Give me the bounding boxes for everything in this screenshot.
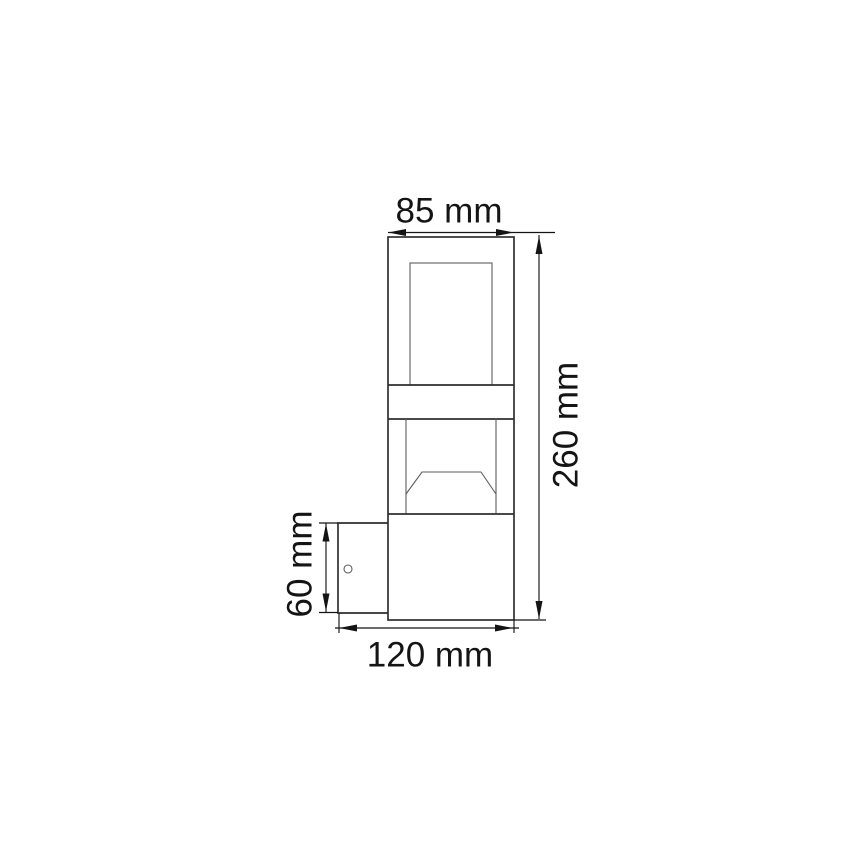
dimension-drawing-page: 85 mm 260 mm 60 mm 120 mm — [0, 0, 868, 868]
height-bottom-arrow-icon — [536, 601, 543, 619]
lamp-body-outline — [388, 237, 514, 620]
depth-left-arrow-icon — [339, 625, 357, 632]
height-top-arrow-icon — [536, 236, 543, 254]
wall-bracket-outline — [338, 523, 388, 613]
reflector-trapezoid — [406, 472, 496, 494]
width-dimension-label: 85 mm — [396, 194, 503, 229]
luminaire-technical-drawing — [0, 0, 868, 868]
screw-hole — [344, 565, 352, 573]
height-dimension-label: 260 mm — [549, 362, 584, 488]
diffuser-window — [410, 263, 492, 385]
depth-dimension-label: 120 mm — [367, 638, 493, 673]
bracket-dimension-label: 60 mm — [283, 511, 318, 618]
bracket-bottom-arrow-icon — [323, 594, 330, 612]
bracket-top-arrow-icon — [323, 524, 330, 542]
depth-right-arrow-icon — [495, 625, 513, 632]
